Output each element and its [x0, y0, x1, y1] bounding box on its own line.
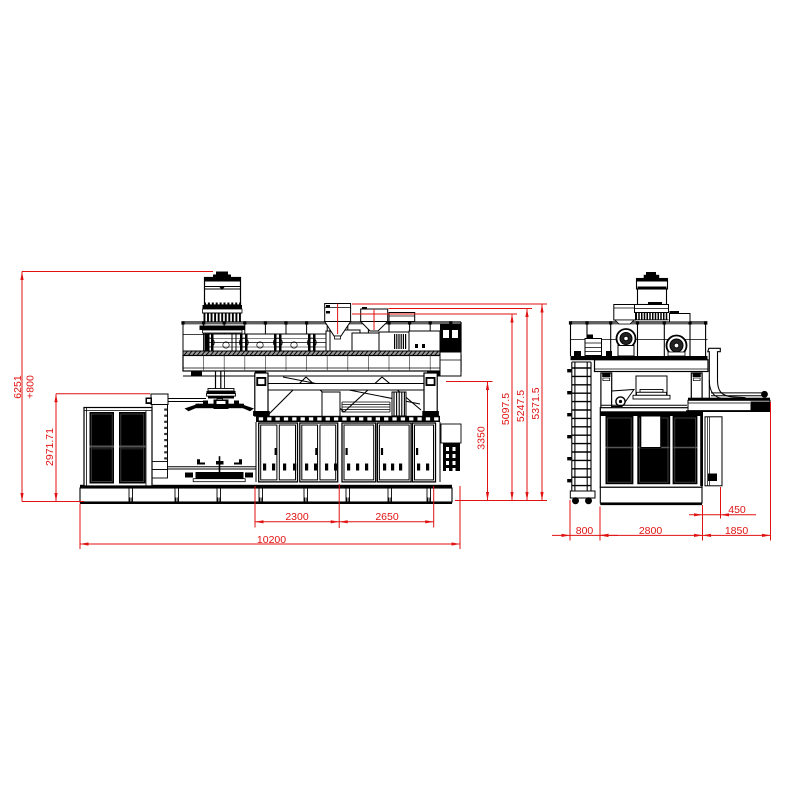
svg-text:10200: 10200	[257, 534, 286, 546]
svg-text:2800: 2800	[639, 525, 663, 537]
svg-text:5097.5: 5097.5	[500, 393, 512, 425]
svg-text:5371.5: 5371.5	[530, 387, 542, 419]
svg-text:2650: 2650	[375, 511, 399, 523]
svg-text:2300: 2300	[285, 511, 309, 523]
svg-text:450: 450	[728, 504, 746, 516]
svg-text:2971.71: 2971.71	[44, 428, 56, 466]
svg-text:5247.5: 5247.5	[515, 390, 527, 422]
svg-text:1850: 1850	[725, 525, 749, 537]
svg-text:3350: 3350	[476, 426, 488, 450]
svg-text:6251: 6251	[12, 375, 24, 399]
svg-text:800: 800	[576, 525, 594, 537]
svg-text:+800: +800	[25, 375, 37, 399]
